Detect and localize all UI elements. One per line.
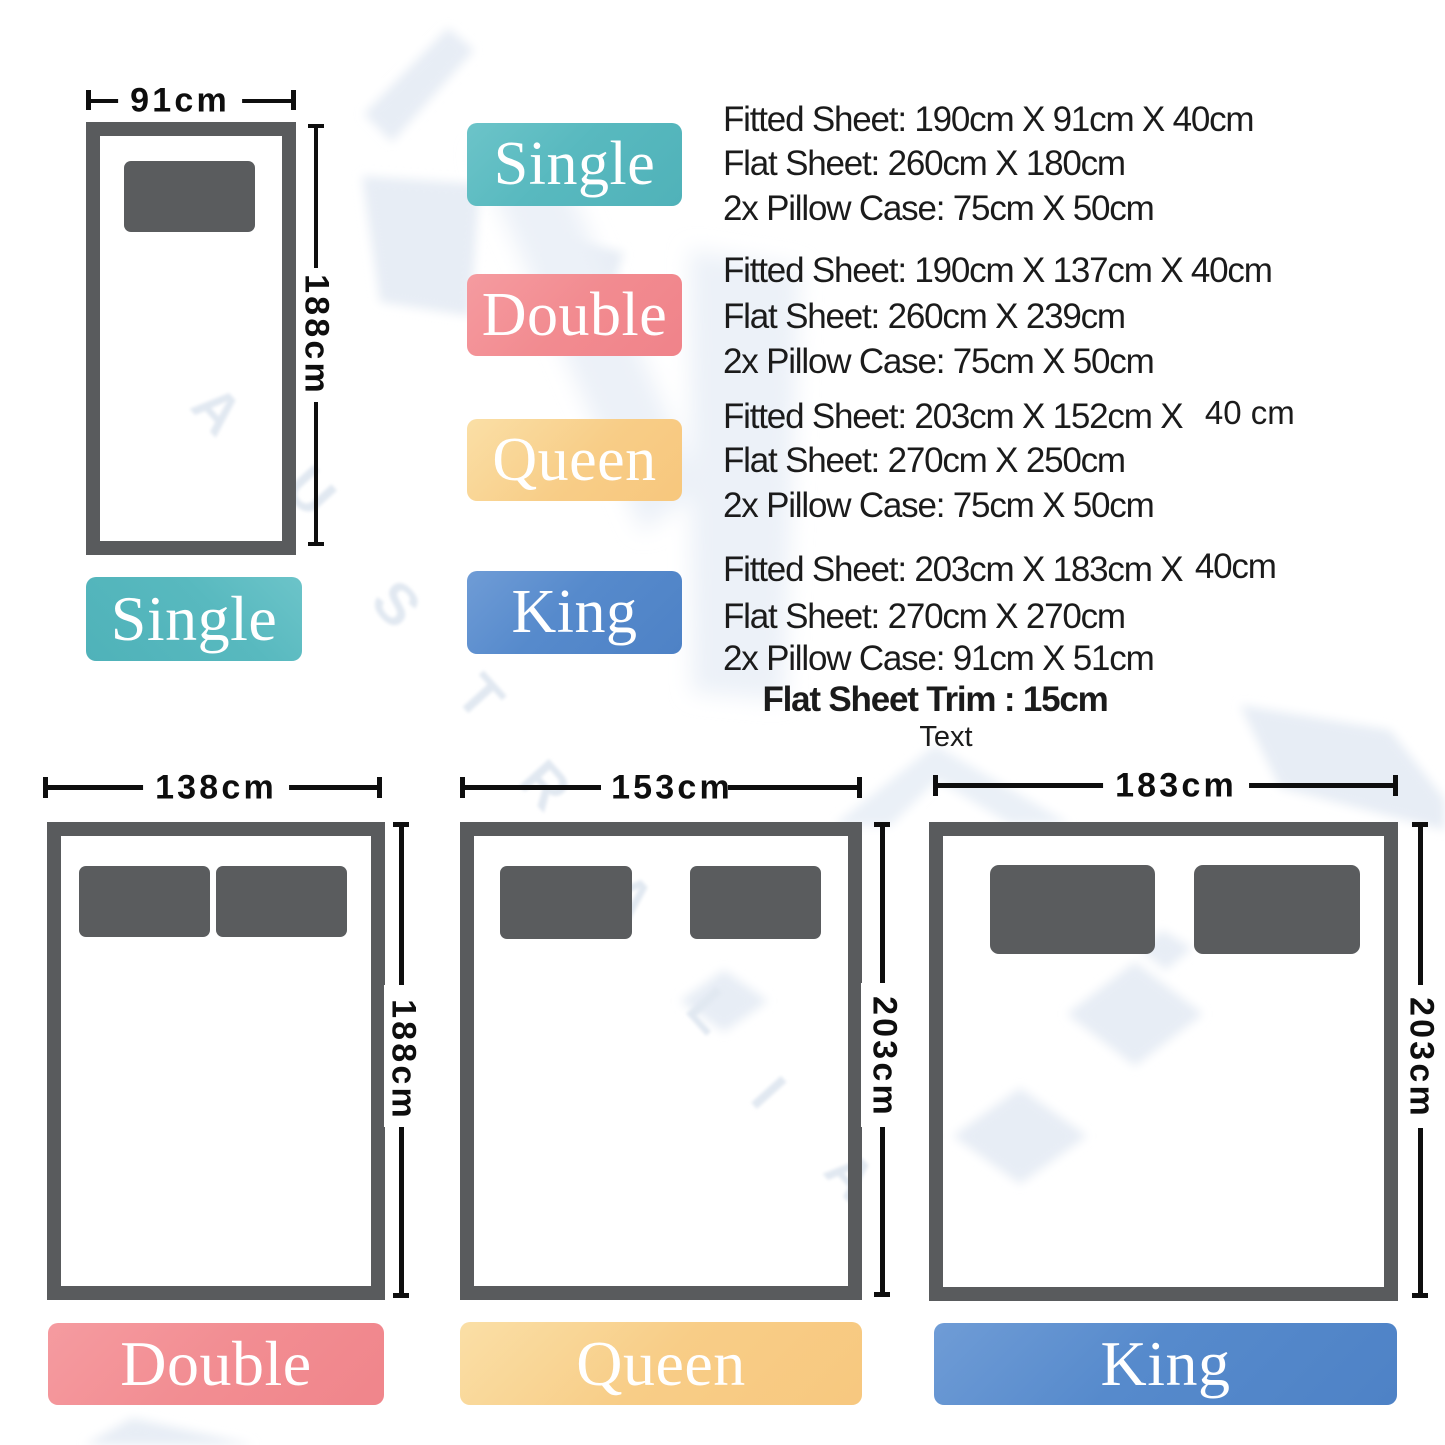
svg-text:S: S: [359, 568, 433, 640]
svg-text:T: T: [444, 662, 516, 732]
